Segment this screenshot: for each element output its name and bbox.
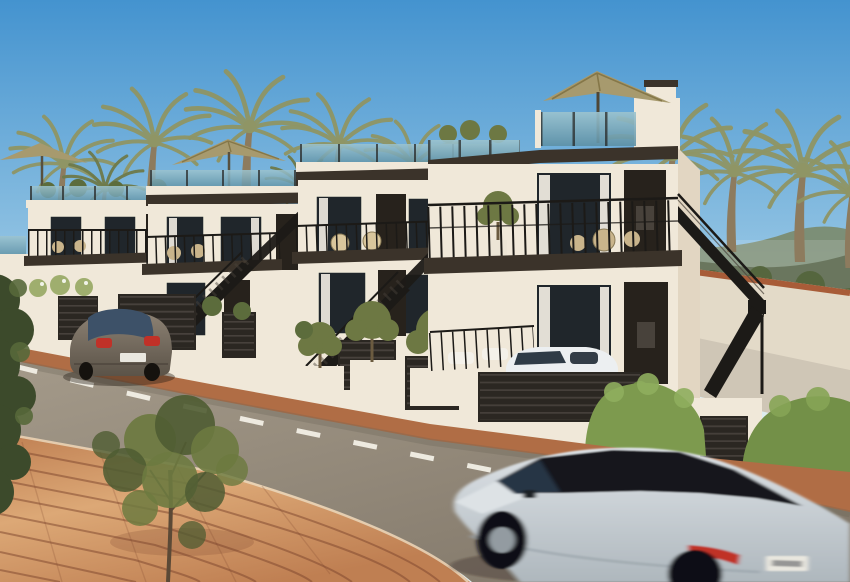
city-car-windshield: [514, 351, 566, 365]
window: [104, 216, 136, 258]
taillight: [96, 338, 112, 348]
lounge-chair: [448, 352, 474, 364]
roof-bulkhead: [634, 98, 680, 154]
rattan-chair: [363, 232, 381, 250]
lounge-chair: [482, 348, 508, 360]
side-wall: [678, 148, 700, 420]
balcony-chair: [624, 231, 640, 247]
suv-mirror: [523, 490, 536, 498]
rendered-photo: [0, 0, 850, 582]
wheel: [79, 362, 93, 380]
terrace-glass-railing: [540, 112, 636, 146]
taillight: [144, 336, 160, 346]
plant-pot: [489, 240, 507, 257]
planter-box: [350, 360, 398, 394]
entrance-door: [376, 194, 406, 256]
scene-canvas: [0, 0, 850, 582]
terrace-chair: [52, 241, 64, 253]
terrace-chair: [74, 240, 86, 252]
flowers: [40, 282, 44, 286]
license-plate: [120, 353, 146, 362]
door-panel: [637, 322, 655, 348]
neighbor-glass-railing: [0, 236, 26, 256]
chimney-cap: [644, 80, 678, 87]
terrace-chair: [167, 246, 181, 260]
wheel: [144, 363, 160, 381]
suv-alloy: [489, 527, 515, 553]
city-car-window: [570, 352, 598, 364]
plate-blur-text: [772, 563, 802, 564]
planter-box: [300, 366, 344, 396]
railing-end-post: [535, 110, 541, 148]
